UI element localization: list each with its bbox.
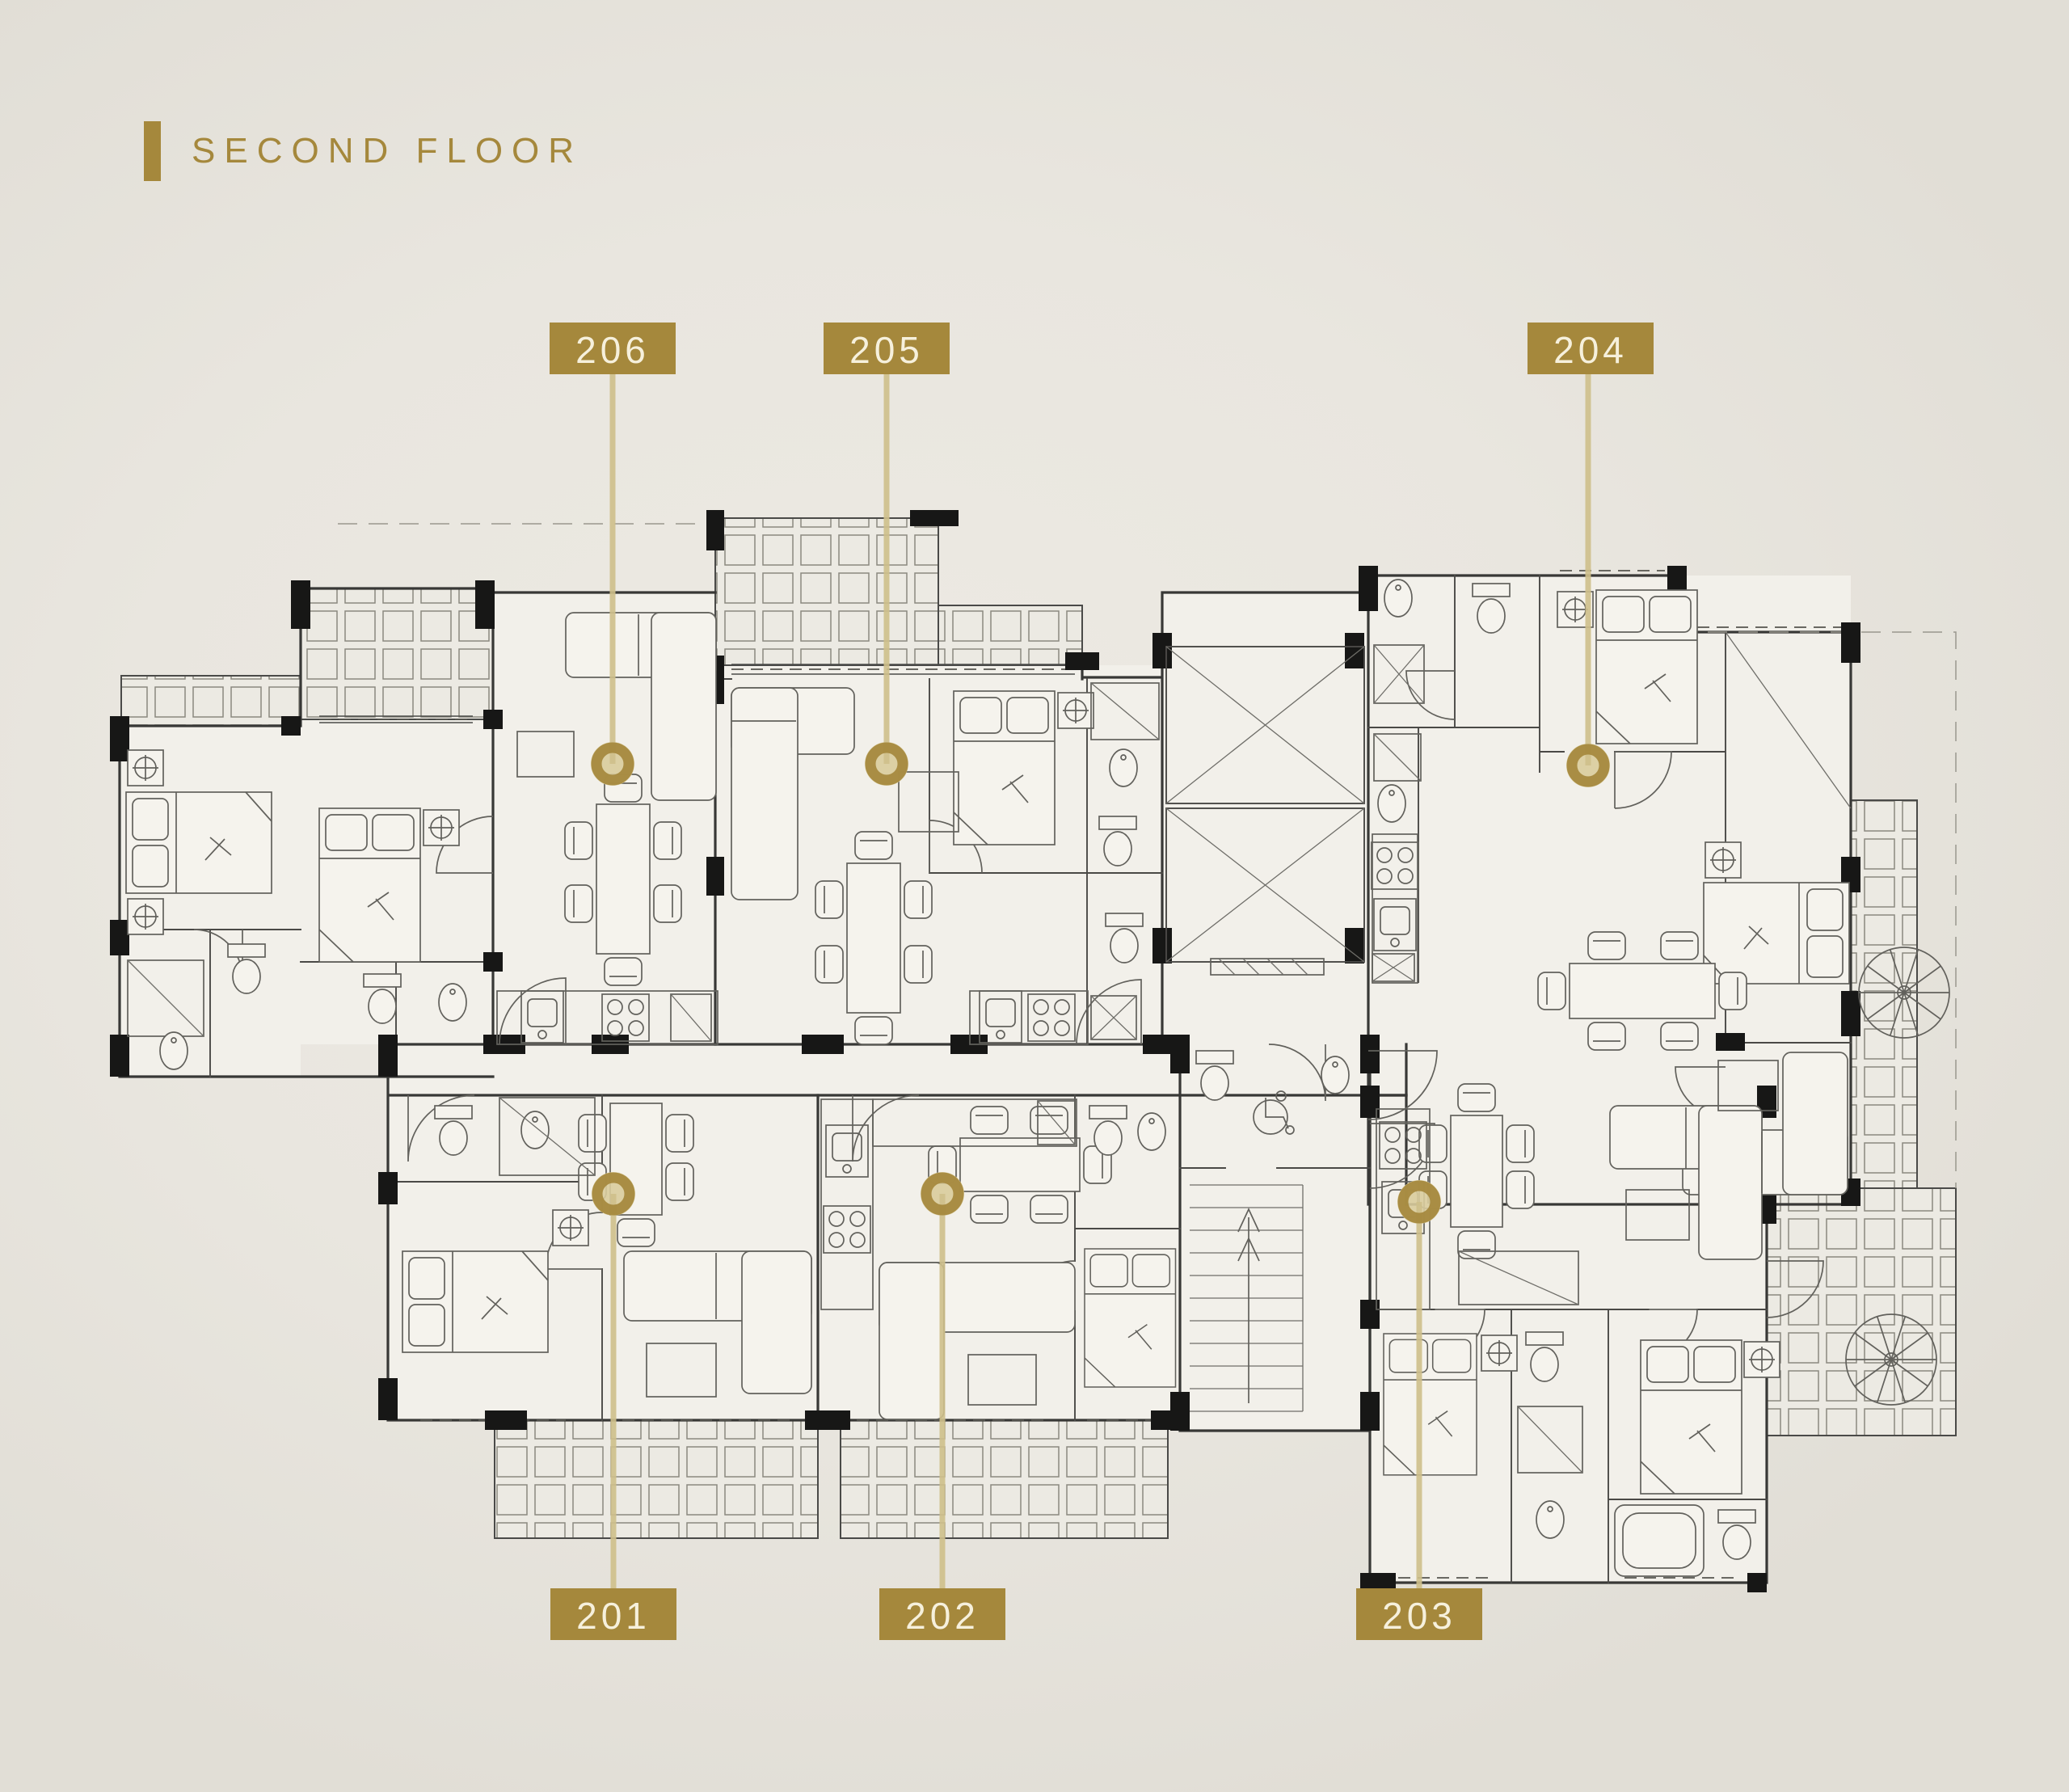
bed-icon <box>1085 1249 1176 1387</box>
bed-icon <box>402 1251 548 1352</box>
unit-label-202[interactable]: 202 <box>879 1588 1005 1640</box>
title-accent-bar <box>144 121 161 181</box>
nightstand-icon <box>1744 1342 1780 1377</box>
unit-label-text: 202 <box>905 1595 980 1637</box>
unit-label-text: 206 <box>575 329 650 371</box>
header: SECOND FLOOR <box>144 121 583 181</box>
page: SECOND FLOOR <box>0 0 2069 1792</box>
bed-icon <box>319 808 420 962</box>
nightstand-icon <box>128 899 163 934</box>
unit-label-201[interactable]: 201 <box>550 1588 676 1640</box>
balcony-201 <box>495 1420 818 1538</box>
bed-icon <box>1704 883 1849 984</box>
nightstand-icon <box>1705 842 1741 878</box>
bed-icon <box>1384 1334 1477 1475</box>
unit-label-203[interactable]: 203 <box>1356 1588 1482 1640</box>
nightstand-icon <box>128 750 163 786</box>
bed-icon <box>1596 590 1697 744</box>
bed-icon <box>1641 1340 1742 1494</box>
floor-plan-svg: 206205204201202203 <box>0 0 2069 1792</box>
unit-label-text: 201 <box>576 1595 651 1637</box>
unit-label-205[interactable]: 205 <box>824 323 950 374</box>
balcony-205-left <box>715 518 938 665</box>
terrace-203 <box>1767 1188 1956 1436</box>
nightstand-icon <box>423 810 459 845</box>
nightstand-icon <box>1058 693 1093 728</box>
nightstand-icon <box>553 1210 588 1246</box>
balcony-205-right <box>938 605 1082 665</box>
page-title: SECOND FLOOR <box>192 131 583 171</box>
unit-label-text: 205 <box>849 329 924 371</box>
balcony-206 <box>301 588 493 719</box>
bed-icon <box>126 792 272 893</box>
unit-label-text: 203 <box>1382 1595 1456 1637</box>
bed-icon <box>954 691 1055 845</box>
nightstand-icon <box>1481 1335 1517 1371</box>
balcony-202 <box>841 1420 1168 1538</box>
unit-label-206[interactable]: 206 <box>550 323 676 374</box>
floor-plan <box>110 510 1956 1592</box>
unit-label-text: 204 <box>1553 329 1628 371</box>
unit-label-204[interactable]: 204 <box>1528 323 1654 374</box>
balcony-left-wing <box>121 676 301 726</box>
